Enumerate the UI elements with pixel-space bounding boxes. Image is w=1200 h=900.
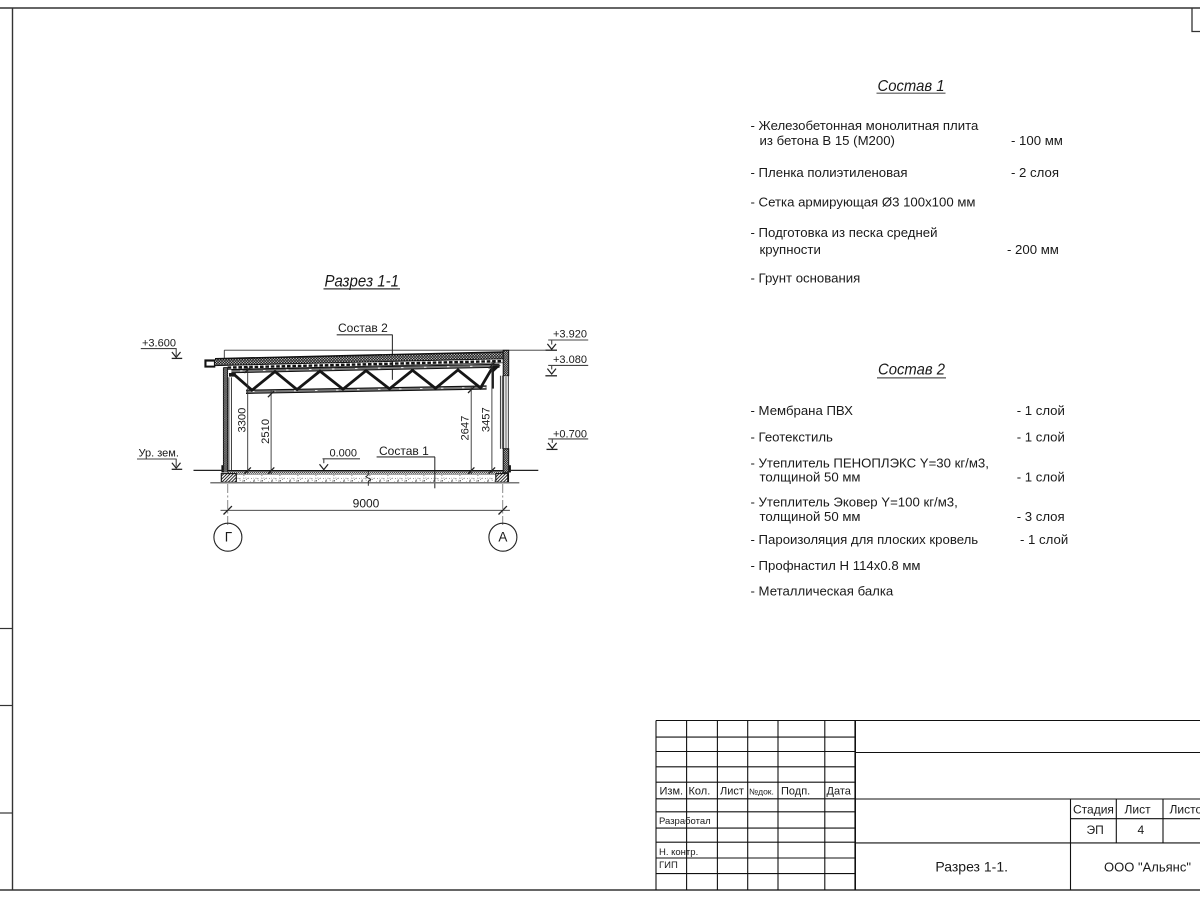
svg-text:3457: 3457 bbox=[480, 407, 492, 432]
svg-text:- Подготовка из песка средней: - Подготовка из песка средней bbox=[751, 225, 938, 240]
svg-text:- Утеплитель Эковер Y=100 кг/м: - Утеплитель Эковер Y=100 кг/м3, bbox=[751, 495, 958, 510]
svg-text:- Пленка полиэтиленовая: - Пленка полиэтиленовая bbox=[751, 165, 908, 180]
svg-text:+3.600: +3.600 bbox=[142, 337, 176, 349]
svg-text:Г: Г bbox=[225, 530, 233, 545]
svg-text:- 1 слой: - 1 слой bbox=[1020, 532, 1068, 547]
svg-text:№док.: №док. bbox=[749, 787, 774, 797]
svg-text:Изм.: Изм. bbox=[660, 786, 684, 798]
svg-text:- 1 слой: - 1 слой bbox=[1017, 403, 1065, 418]
svg-text:- Металлическая балка: - Металлическая балка bbox=[751, 584, 894, 599]
svg-text:Состав 2: Состав 2 bbox=[878, 362, 945, 379]
svg-text:Ур. зем.: Ур. зем. bbox=[139, 447, 179, 459]
svg-text:ЭП: ЭП bbox=[1087, 823, 1104, 837]
svg-text:- 1 слой: - 1 слой bbox=[1017, 430, 1065, 445]
svg-text:2647: 2647 bbox=[459, 416, 471, 441]
svg-text:Н. контр.: Н. контр. bbox=[659, 847, 698, 858]
svg-text:- Геотекстиль: - Геотекстиль bbox=[751, 430, 834, 445]
svg-text:- 2 слоя: - 2 слоя bbox=[1011, 165, 1059, 180]
svg-text:4: 4 bbox=[1138, 823, 1145, 837]
svg-text:из бетона В 15 (М200): из бетона В 15 (М200) bbox=[760, 133, 895, 148]
svg-text:- 3 слоя: - 3 слоя bbox=[1017, 509, 1065, 524]
svg-text:2510: 2510 bbox=[260, 419, 272, 444]
svg-text:Листов: Листов bbox=[1170, 802, 1200, 816]
svg-text:Подп.: Подп. bbox=[781, 786, 810, 798]
svg-text:крупности: крупности bbox=[760, 242, 821, 257]
svg-text:толщиной 50 мм: толщиной 50 мм bbox=[760, 470, 861, 485]
svg-text:толщиной 50 мм: толщиной 50 мм bbox=[760, 509, 861, 524]
svg-text:+3.080: +3.080 bbox=[553, 354, 587, 366]
svg-text:- Профнастил Н 114х0.8 мм: - Профнастил Н 114х0.8 мм bbox=[751, 558, 921, 573]
svg-text:Лист: Лист bbox=[1125, 802, 1152, 816]
svg-text:Состав 2: Состав 2 bbox=[338, 321, 388, 335]
svg-text:Разрез 1-1: Разрез 1-1 bbox=[325, 272, 400, 291]
svg-text:0.000: 0.000 bbox=[330, 447, 358, 459]
svg-text:ООО "Альянс": ООО "Альянс" bbox=[1104, 859, 1191, 874]
svg-text:Состав 1: Состав 1 bbox=[379, 444, 429, 458]
svg-text:Стадия: Стадия bbox=[1073, 802, 1114, 816]
svg-text:Разрез 1-1.: Разрез 1-1. bbox=[935, 858, 1008, 874]
svg-text:- 100 мм: - 100 мм bbox=[1011, 133, 1063, 148]
svg-text:Кол.: Кол. bbox=[689, 786, 711, 798]
svg-text:ГИП: ГИП bbox=[659, 860, 678, 871]
svg-text:Состав 1: Состав 1 bbox=[878, 78, 945, 95]
svg-text:9000: 9000 bbox=[353, 497, 380, 511]
svg-text:Разработал: Разработал bbox=[659, 816, 711, 827]
svg-text:Лист: Лист bbox=[720, 786, 744, 798]
svg-text:- Мембрана ПВХ: - Мембрана ПВХ bbox=[751, 403, 854, 418]
svg-text:Дата: Дата bbox=[827, 786, 852, 798]
svg-text:- Пароизоляция для плоских кро: - Пароизоляция для плоских кровель bbox=[751, 532, 979, 547]
svg-text:- Грунт основания: - Грунт основания bbox=[751, 271, 861, 286]
svg-text:- 200 мм: - 200 мм bbox=[1007, 242, 1059, 257]
svg-text:- Железобетонная монолитная п: - Железобетонная монолитная плита bbox=[751, 118, 980, 133]
svg-text:- Сетка армирующая Ø3 100х100: - Сетка армирующая Ø3 100х100 мм bbox=[751, 195, 976, 210]
svg-text:А: А bbox=[498, 530, 507, 545]
svg-text:- Утеплитель ПЕНОПЛЭКС Y=30 кг: - Утеплитель ПЕНОПЛЭКС Y=30 кг/м3, bbox=[751, 455, 989, 470]
svg-text:3300: 3300 bbox=[237, 408, 249, 433]
svg-text:- 1 слой: - 1 слой bbox=[1017, 470, 1065, 485]
svg-text:+3.920: +3.920 bbox=[553, 329, 587, 341]
